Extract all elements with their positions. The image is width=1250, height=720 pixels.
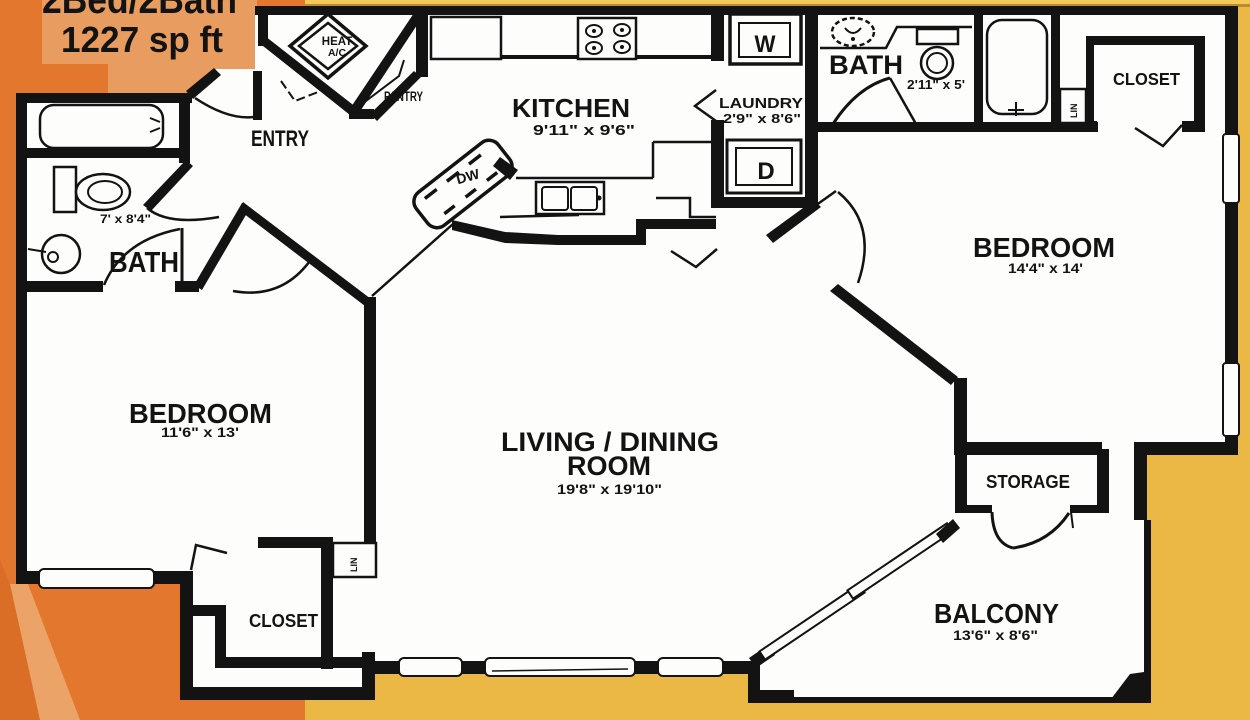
svg-text:KITCHEN: KITCHEN bbox=[512, 93, 630, 123]
svg-text:ENTRY: ENTRY bbox=[251, 126, 309, 151]
svg-text:LAUNDRY: LAUNDRY bbox=[719, 95, 803, 112]
svg-text:13'6" x 8'6": 13'6" x 8'6" bbox=[953, 628, 1038, 643]
svg-text:BALCONY: BALCONY bbox=[934, 598, 1059, 629]
svg-text:19'8" x 19'10": 19'8" x 19'10" bbox=[557, 481, 662, 497]
svg-text:1227 sp ft: 1227 sp ft bbox=[61, 19, 223, 60]
svg-text:PANTRY: PANTRY bbox=[384, 89, 423, 104]
svg-text:W: W bbox=[755, 31, 776, 58]
svg-text:BATH: BATH bbox=[829, 50, 903, 80]
svg-text:7' x 8'4": 7' x 8'4" bbox=[100, 212, 151, 226]
svg-text:BATH: BATH bbox=[109, 247, 179, 279]
svg-text:STORAGE: STORAGE bbox=[986, 471, 1070, 492]
svg-text:CLOSET: CLOSET bbox=[249, 610, 319, 631]
svg-text:LIN: LIN bbox=[1069, 104, 1079, 119]
svg-text:CLOSET: CLOSET bbox=[1113, 69, 1180, 89]
svg-text:11'6" x 13': 11'6" x 13' bbox=[161, 424, 239, 440]
svg-text:9'11" x 9'6": 9'11" x 9'6" bbox=[533, 122, 635, 139]
svg-text:14'4" x 14': 14'4" x 14' bbox=[1008, 260, 1083, 276]
svg-text:BEDROOM: BEDROOM bbox=[973, 232, 1115, 263]
svg-text:2'9" x 8'6": 2'9" x 8'6" bbox=[723, 111, 801, 126]
svg-text:LIN: LIN bbox=[349, 558, 359, 573]
svg-text:ROOM: ROOM bbox=[567, 451, 651, 481]
svg-text:A/C: A/C bbox=[328, 47, 347, 59]
svg-text:D: D bbox=[757, 158, 774, 185]
